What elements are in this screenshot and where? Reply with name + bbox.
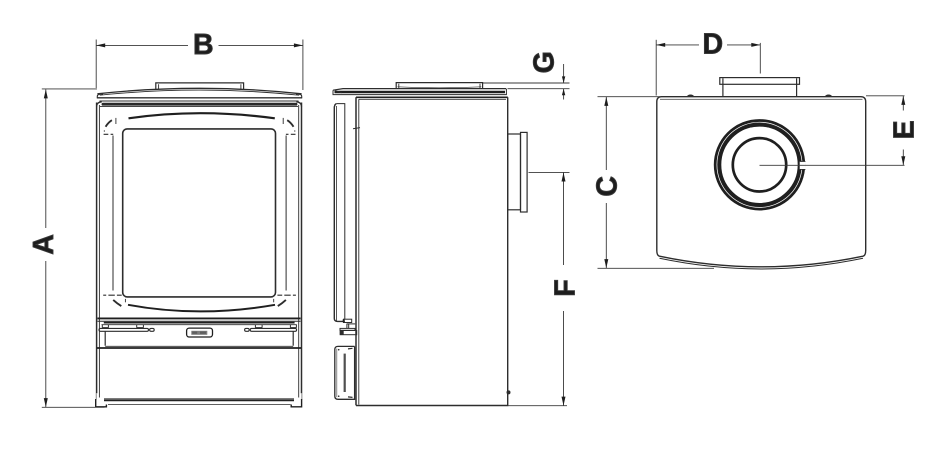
- svg-text:D: D: [703, 28, 724, 60]
- svg-text:A: A: [28, 234, 60, 255]
- svg-text:F: F: [550, 279, 582, 296]
- svg-text:B: B: [193, 29, 214, 61]
- svg-text:E: E: [888, 120, 920, 139]
- svg-text:C: C: [591, 176, 623, 197]
- svg-text:G: G: [529, 51, 561, 73]
